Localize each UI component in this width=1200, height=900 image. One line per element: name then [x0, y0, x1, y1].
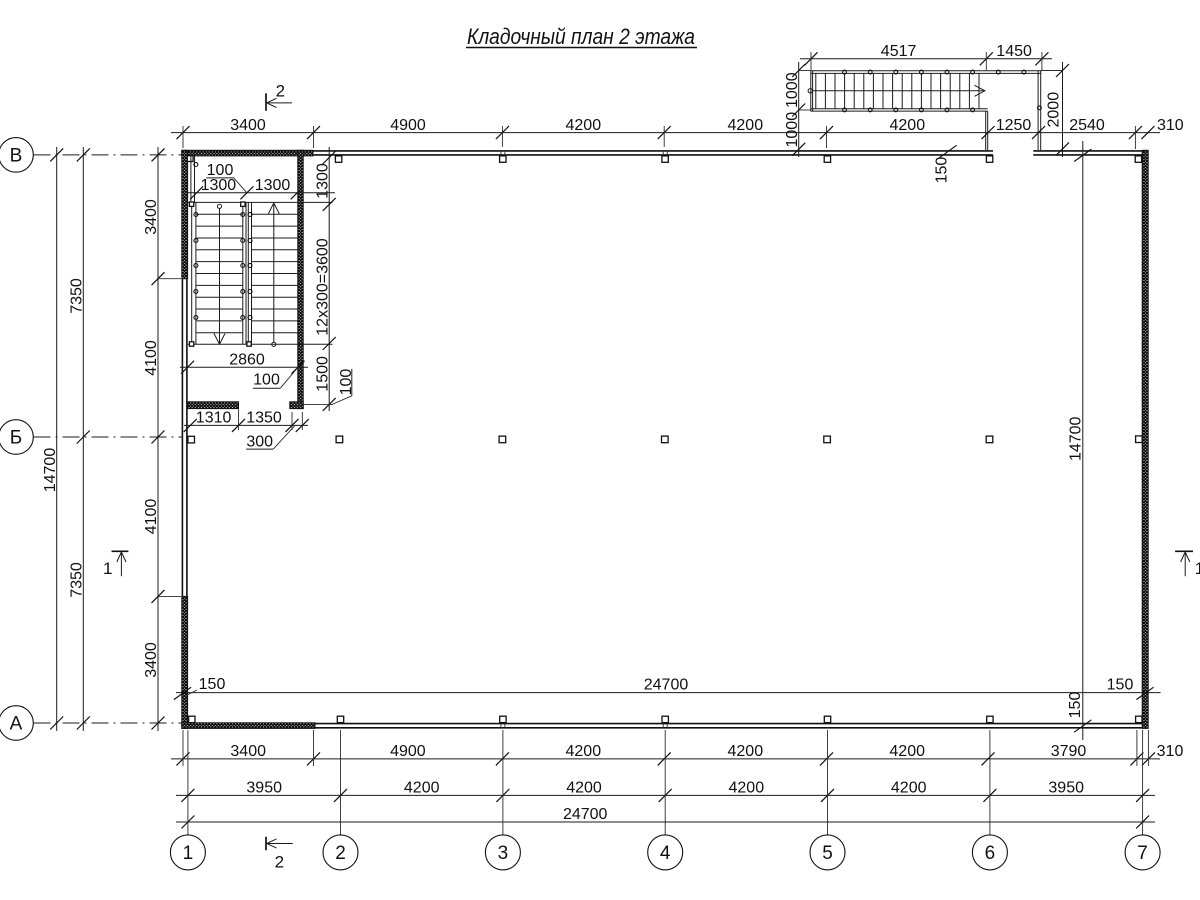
svg-text:3400: 3400	[230, 743, 266, 760]
svg-text:1300: 1300	[201, 177, 237, 194]
svg-text:В: В	[10, 146, 23, 167]
svg-text:100: 100	[253, 371, 280, 388]
svg-text:4200: 4200	[566, 117, 602, 134]
svg-text:1500: 1500	[314, 356, 331, 392]
svg-text:3400: 3400	[143, 642, 160, 678]
svg-text:300: 300	[246, 434, 273, 451]
svg-text:4200: 4200	[404, 779, 440, 796]
svg-text:4200: 4200	[566, 743, 602, 760]
svg-text:4200: 4200	[890, 117, 926, 134]
svg-text:Кладочный план 2 этажа: Кладочный план 2 этажа	[467, 24, 695, 49]
svg-text:310: 310	[1157, 743, 1184, 760]
svg-text:1310: 1310	[196, 410, 232, 427]
svg-text:4517: 4517	[881, 43, 917, 60]
svg-text:310: 310	[1157, 117, 1184, 134]
svg-text:7350: 7350	[68, 278, 85, 314]
svg-text:4: 4	[660, 843, 671, 864]
svg-text:24700: 24700	[563, 806, 608, 823]
svg-text:1300: 1300	[314, 163, 331, 199]
svg-text:4900: 4900	[390, 743, 426, 760]
svg-text:150: 150	[934, 157, 951, 184]
svg-text:2: 2	[335, 843, 346, 864]
svg-text:6: 6	[985, 843, 996, 864]
svg-text:2860: 2860	[229, 351, 265, 368]
svg-text:24700: 24700	[644, 677, 689, 694]
svg-text:Б: Б	[10, 428, 22, 449]
svg-text:4200: 4200	[891, 779, 927, 796]
svg-text:1: 1	[1195, 559, 1200, 578]
svg-text:4200: 4200	[889, 743, 925, 760]
svg-text:4200: 4200	[729, 779, 765, 796]
svg-text:1000: 1000	[784, 112, 801, 148]
svg-text:14700: 14700	[1068, 416, 1085, 461]
svg-text:2000: 2000	[1045, 92, 1062, 128]
svg-text:3790: 3790	[1051, 743, 1087, 760]
svg-text:150: 150	[199, 676, 226, 693]
svg-text:4200: 4200	[728, 743, 764, 760]
svg-text:4200: 4200	[566, 779, 602, 796]
svg-text:1450: 1450	[996, 43, 1032, 60]
svg-text:3950: 3950	[246, 779, 282, 796]
svg-text:1300: 1300	[255, 177, 291, 194]
svg-text:100: 100	[207, 162, 234, 179]
svg-text:3400: 3400	[143, 199, 160, 235]
svg-text:1: 1	[183, 843, 194, 864]
svg-text:3400: 3400	[230, 117, 266, 134]
svg-text:2: 2	[275, 853, 284, 872]
svg-text:2540: 2540	[1069, 117, 1105, 134]
svg-text:7350: 7350	[68, 562, 85, 598]
svg-text:А: А	[10, 714, 23, 735]
svg-text:1000: 1000	[784, 72, 801, 108]
svg-text:150: 150	[1107, 677, 1134, 694]
svg-text:4100: 4100	[143, 499, 160, 535]
svg-text:1250: 1250	[996, 117, 1032, 134]
svg-text:7: 7	[1137, 843, 1148, 864]
svg-text:5: 5	[822, 843, 833, 864]
svg-text:4200: 4200	[728, 117, 764, 134]
svg-text:150: 150	[1067, 692, 1084, 719]
svg-text:14700: 14700	[42, 448, 59, 493]
svg-text:12x300=3600: 12x300=3600	[314, 238, 331, 336]
svg-text:4100: 4100	[143, 340, 160, 376]
svg-text:3: 3	[498, 843, 509, 864]
svg-text:1350: 1350	[246, 410, 282, 427]
svg-text:100: 100	[338, 369, 355, 396]
svg-text:1: 1	[103, 559, 112, 578]
svg-text:2: 2	[276, 82, 285, 101]
svg-text:3950: 3950	[1048, 779, 1084, 796]
svg-text:4900: 4900	[390, 117, 426, 134]
